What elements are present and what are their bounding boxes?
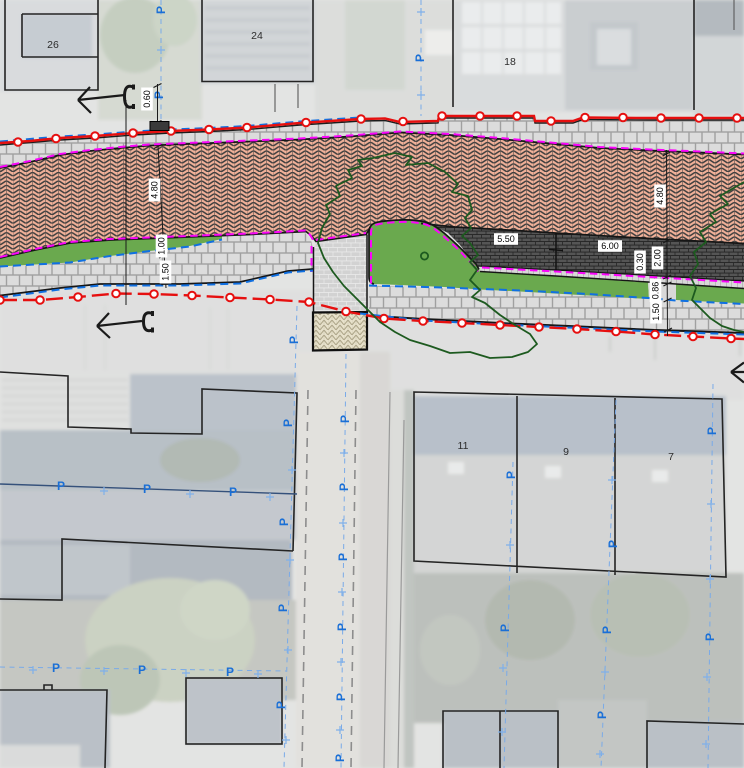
svg-text:P: P <box>498 624 512 632</box>
svg-text:P: P <box>600 626 614 634</box>
svg-text:9: 9 <box>563 446 569 458</box>
svg-text:1.00: 1.00 <box>157 237 167 255</box>
svg-text:P: P <box>274 701 288 709</box>
svg-text:P: P <box>606 540 620 548</box>
svg-text:6.00: 6.00 <box>601 241 619 251</box>
svg-text:P: P <box>52 661 60 675</box>
svg-text:0.30: 0.30 <box>635 253 645 271</box>
svg-text:P: P <box>504 471 518 479</box>
svg-text:11: 11 <box>458 440 469 452</box>
svg-text:P: P <box>276 604 290 612</box>
svg-text:P: P <box>281 419 295 427</box>
svg-text:P: P <box>705 427 719 435</box>
svg-text:P: P <box>154 6 168 14</box>
svg-text:P: P <box>277 518 291 526</box>
svg-text:0.60: 0.60 <box>142 90 152 108</box>
svg-text:24: 24 <box>251 30 263 42</box>
svg-text:P: P <box>57 479 65 493</box>
svg-text:P: P <box>703 633 717 641</box>
svg-text:P: P <box>333 754 347 762</box>
svg-text:0.86: 0.86 <box>651 282 661 300</box>
svg-text:P: P <box>595 711 609 719</box>
svg-text:2.00: 2.00 <box>653 249 663 267</box>
svg-text:1.50: 1.50 <box>651 303 661 321</box>
svg-text:P: P <box>334 693 348 701</box>
svg-text:P: P <box>143 482 151 496</box>
svg-text:P: P <box>229 485 237 499</box>
svg-text:18: 18 <box>504 56 516 68</box>
svg-text:P: P <box>336 553 350 561</box>
svg-text:P: P <box>152 91 166 99</box>
svg-text:4.80: 4.80 <box>150 181 160 199</box>
svg-text:P: P <box>338 415 352 423</box>
svg-text:5.50: 5.50 <box>497 234 515 244</box>
svg-text:P: P <box>287 336 301 344</box>
svg-text:26: 26 <box>47 39 59 51</box>
svg-text:7: 7 <box>668 451 674 463</box>
svg-text:P: P <box>335 623 349 631</box>
svg-text:P: P <box>226 665 234 679</box>
svg-text:4.80: 4.80 <box>655 187 665 205</box>
svg-text:P: P <box>413 54 427 62</box>
svg-text:1.50: 1.50 <box>161 263 171 281</box>
svg-text:P: P <box>138 663 146 677</box>
svg-text:P: P <box>337 483 351 491</box>
